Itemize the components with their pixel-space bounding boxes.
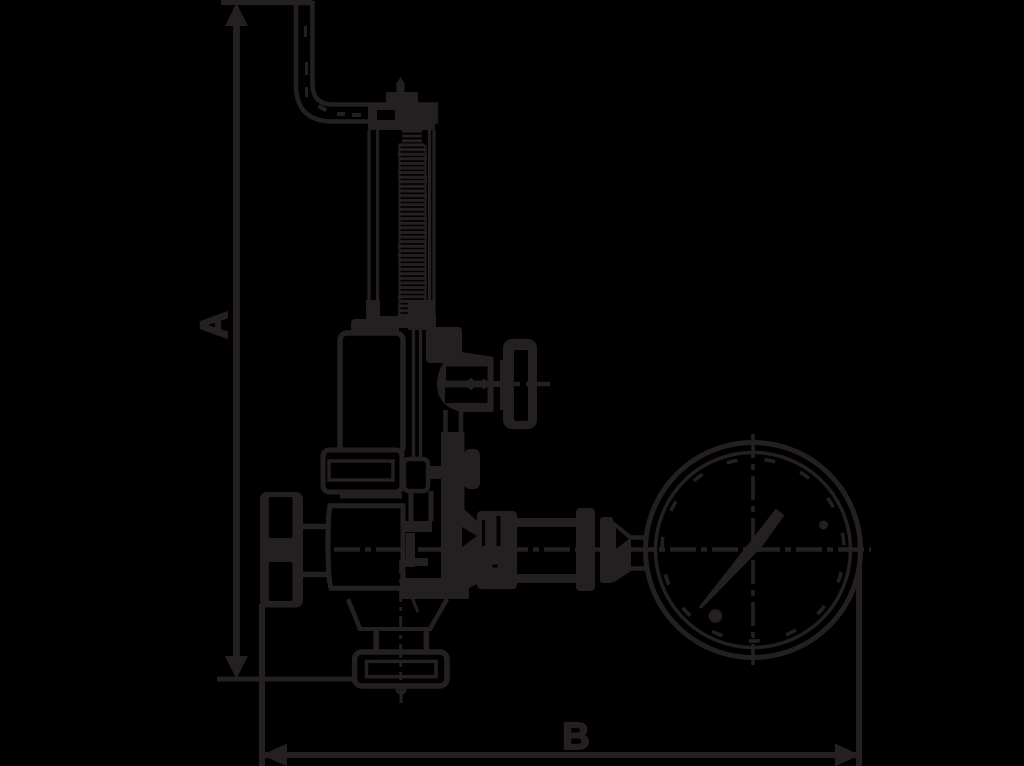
svg-text:A: A <box>194 311 236 338</box>
svg-text:B: B <box>562 716 589 758</box>
